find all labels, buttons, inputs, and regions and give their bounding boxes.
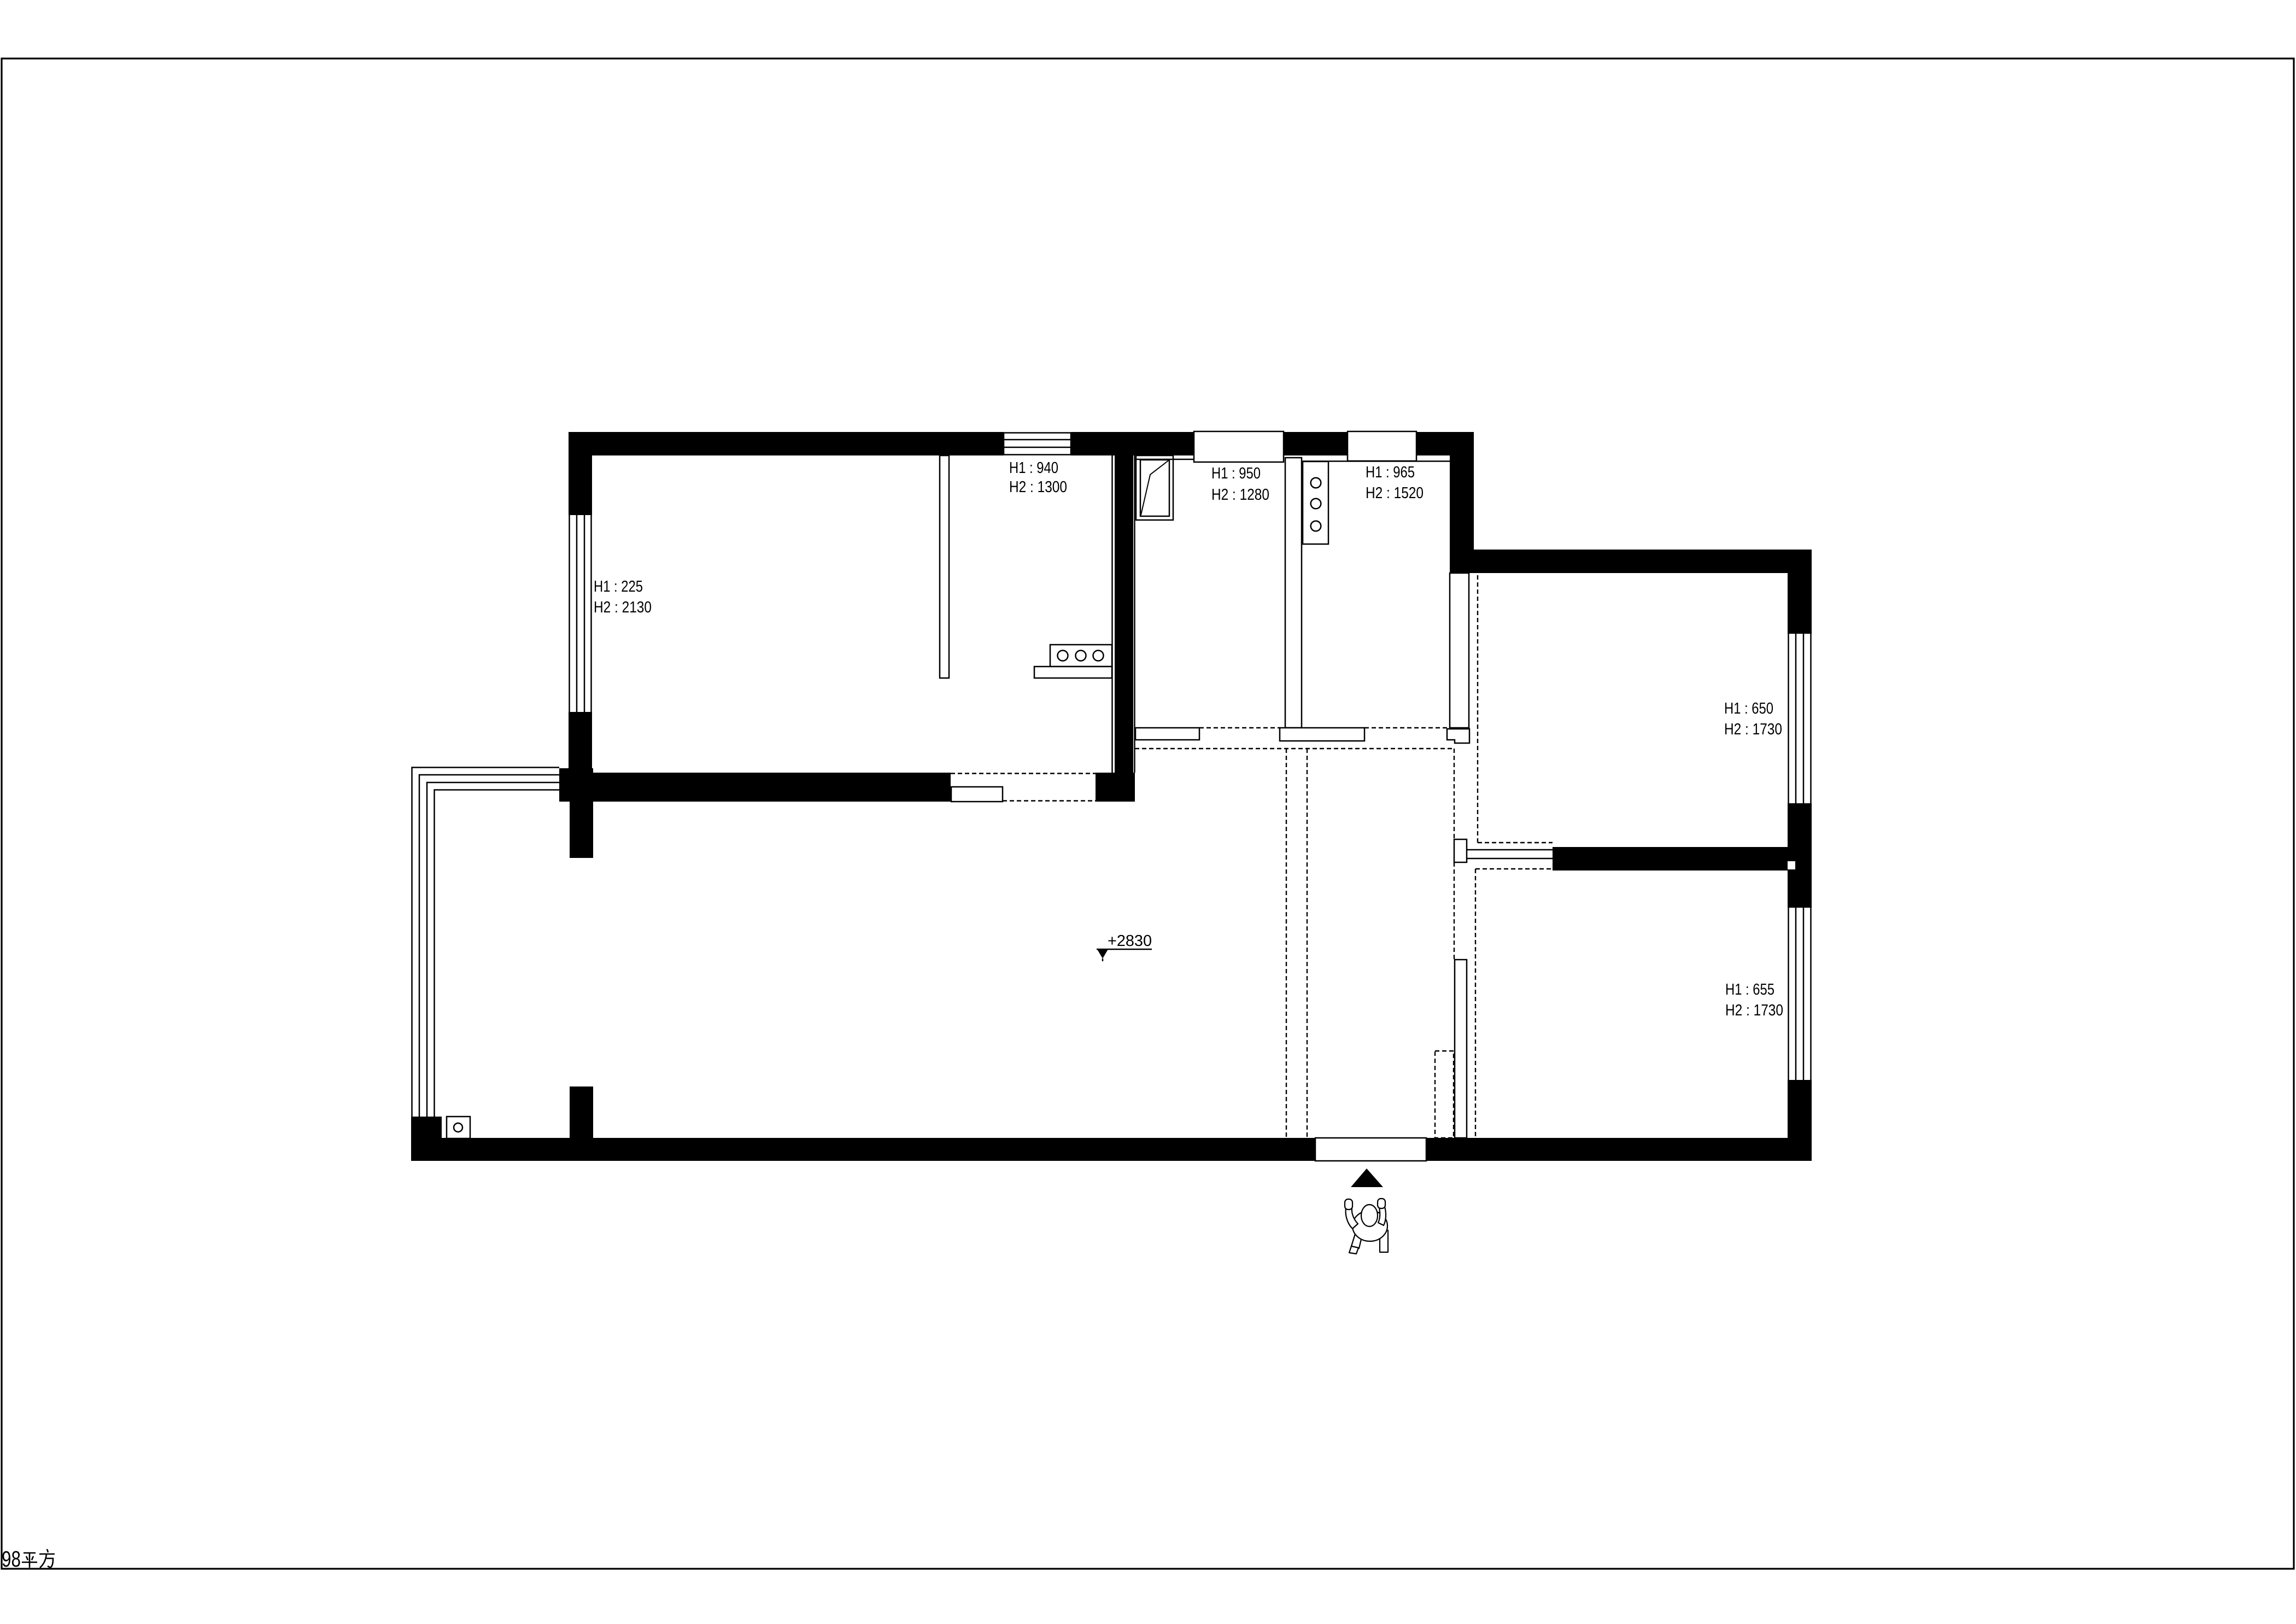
svg-text:H1 : 940: H1 : 940 (1009, 459, 1058, 477)
svg-text:H2 : 1730: H2 : 1730 (1724, 721, 1782, 738)
svg-text:H1 : 965: H1 : 965 (1366, 464, 1415, 481)
svg-text:98: 98 (2, 1546, 21, 1572)
svg-text:H2 : 1520: H2 : 1520 (1366, 484, 1424, 502)
svg-text:H2 : 1730: H2 : 1730 (1725, 1002, 1783, 1019)
svg-text:H2 : 1280: H2 : 1280 (1211, 486, 1269, 504)
svg-text:H1 : 225: H1 : 225 (594, 578, 643, 595)
svg-text:H1 : 950: H1 : 950 (1211, 465, 1261, 482)
svg-text:H1 : 655: H1 : 655 (1725, 981, 1774, 998)
svg-text:H2 : 1300: H2 : 1300 (1009, 478, 1067, 496)
svg-text:+2830: +2830 (1108, 932, 1152, 950)
svg-text:H2 : 2130: H2 : 2130 (594, 599, 652, 616)
svg-text:H1 : 650: H1 : 650 (1724, 700, 1773, 717)
